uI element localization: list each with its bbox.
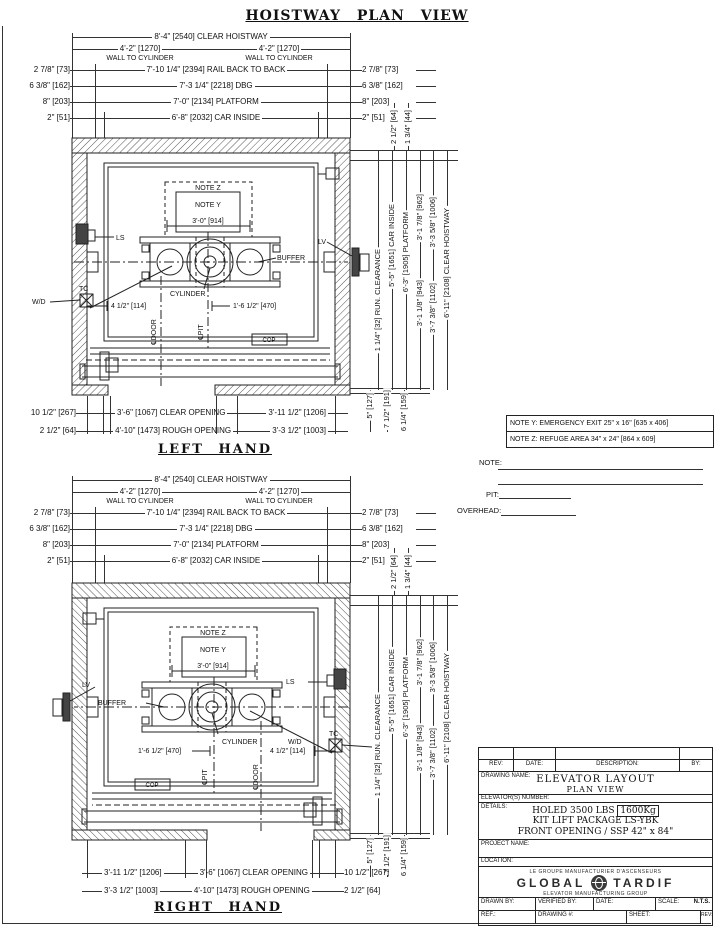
top-dim-row: 2 7/8" [73] 7'-10 1/4" [2394] RAIL BACK …	[16, 66, 436, 74]
dim-label: 3'-3 1/2" [1003]	[270, 427, 328, 435]
dim-line	[255, 529, 362, 530]
dim-line	[328, 413, 348, 414]
dim-label: 7'-0" [2134] PLATFORM	[171, 541, 261, 549]
logo-row: LE GROUPE MANUFACTURIER D'ASCENSEURS GLO…	[479, 867, 712, 898]
title-block: REV: DATE: DESCRIPTION: BY: DRAWING NAME…	[478, 747, 713, 926]
overhead-field-line	[501, 515, 576, 516]
wd-label: W/D	[32, 299, 46, 306]
dim-sublabel: WALL TO CYLINDER	[224, 55, 334, 62]
dim-label: 3'-7 3/8" [1102]	[429, 281, 437, 335]
top-dim-row: 4'-2" [1270]	[208, 45, 350, 53]
dim-line	[255, 86, 362, 87]
description-cell-empty	[556, 748, 680, 760]
cylinder-label: CYLINDER	[170, 291, 205, 298]
vdim-label: 5'-5" [1651] CAR INSIDE	[386, 180, 398, 310]
dim-label: 3'-1 7/8" [962]	[416, 192, 424, 242]
top-dim-row: 6 3/8" [162] 7'-3 1/4" [2218] DBG 6 3/8"…	[16, 82, 436, 90]
dim-line	[301, 492, 350, 493]
dim-label: 3'-6" [1067] CLEAR OPENING	[115, 409, 227, 417]
dim-label: 4'-2" [1270]	[118, 488, 162, 496]
dim-label: 1 3/4" [44]	[404, 108, 412, 146]
top-dim-row: 2" [51] 6'-8" [2032] CAR INSIDE 2" [51]	[16, 114, 436, 122]
sheet-border-left	[2, 26, 3, 924]
note-z-text: NOTE Z: REFUGE AREA 34" x 24" [864 x 609…	[507, 432, 713, 447]
dim-label: 3'-3 5/8" [1006]	[429, 640, 437, 694]
cop-label: COP	[145, 783, 158, 789]
dim-line	[82, 873, 102, 874]
drawing-name-line2: PLAN VIEW	[479, 785, 712, 794]
ext-line	[350, 33, 351, 138]
vdim-label: 7 1/2" [191]	[381, 344, 393, 474]
door-centerline-label: ℄DOOR	[253, 764, 260, 791]
dim-label: 1 3/4" [44]	[404, 553, 412, 591]
dim-line	[227, 413, 266, 414]
cylinder-label: CYLINDER	[222, 739, 257, 746]
rev-header: REV:	[479, 760, 514, 772]
note-field-line	[498, 484, 703, 485]
overhead-field-label: OVERHEAD:	[457, 507, 501, 515]
buffer-label: BUFFER	[98, 700, 126, 707]
dim-line	[416, 513, 436, 514]
company-logo: GLOBAL TARDIF	[479, 875, 712, 891]
vdim-label: 3'-1 1/8" [943]	[414, 683, 426, 813]
elevator-number-row: ELEVATOR(S) NUMBER:	[479, 795, 712, 803]
dim-label: 3'-1 1/8" [943]	[416, 723, 424, 773]
vdim-label: 3'-7 3/8" [1102]	[427, 243, 439, 373]
dim-label: 8'-4" [2540] CLEAR HOISTWAY	[152, 476, 269, 484]
dim-label: 6 1/4" [159]	[400, 391, 408, 433]
dim-label: 3'-1 1/8" [943]	[416, 278, 424, 328]
dim-label: 7'-0" [2134] PLATFORM	[171, 98, 261, 106]
bottom-dim-row: 3'-11 1/2" [1206] 3'-6" [1067] CLEAR OPE…	[82, 869, 402, 877]
dim-label: 3'-1 7/8" [962]	[416, 637, 424, 687]
dim-label: 2 1/2" [64]	[390, 108, 398, 146]
dim-label: 10 1/2" [267]	[18, 409, 76, 417]
left-hand-title: LEFT HAND	[60, 442, 370, 457]
dim-line	[70, 513, 145, 514]
dim-label: 8" [203]	[16, 541, 70, 549]
dim-label: 3'-3 1/2" [1003]	[102, 887, 160, 895]
right-hand-title: RIGHT HAND	[63, 900, 373, 915]
dim-label: 5" [127]	[366, 836, 374, 866]
dim-label: 5'-5" [1651] CAR INSIDE	[388, 647, 396, 734]
dim-line	[72, 49, 118, 50]
dim-label: 6'-11" [2108] CLEAR HOISTWAY	[443, 206, 451, 320]
dim-label: 6 3/8" [162]	[16, 82, 70, 90]
top-dim-row: 2 7/8" [73] 7'-10 1/4" [2394] RAIL BACK …	[16, 509, 436, 517]
by-cell-empty	[680, 748, 712, 760]
vdim-label: 6'-11" [2108] CLEAR HOISTWAY	[441, 643, 453, 773]
dim-line	[208, 492, 257, 493]
dim-label: 1 1/4" [32] RUN. CLEARANCE	[374, 692, 382, 798]
vdim-label: 5" [127]	[364, 786, 376, 916]
location-row: LOCATION:	[479, 858, 712, 867]
top-dim-row: 8'-4" [2540] CLEAR HOISTWAY	[72, 33, 350, 41]
dim-label: 2 7/8" [73]	[16, 66, 70, 74]
dim-label: 6'-8" [2032] CAR INSIDE	[170, 114, 262, 122]
ext-line	[95, 64, 96, 138]
date-header: DATE:	[514, 760, 556, 772]
dim-label: 7'-10 1/4" [2394] RAIL BACK TO BACK	[145, 509, 288, 517]
dim-label: 10 1/2" [267]	[344, 869, 402, 877]
dim-label: 3'-0" [914]	[192, 218, 224, 225]
dim-line	[82, 891, 102, 892]
ext-line	[350, 476, 351, 583]
sheet-cell: SHEET:	[627, 911, 701, 924]
tc-label: TC	[79, 286, 88, 293]
ext-line	[318, 112, 319, 138]
dim-label: 4'-2" [1270]	[257, 488, 301, 496]
dim-line	[70, 86, 177, 87]
by-header: BY:	[680, 760, 712, 772]
date-cell-empty	[514, 748, 556, 760]
door-centerline-label: ℄DOOR	[151, 319, 158, 346]
dim-label: 3'-6" [1067] CLEAR OPENING	[198, 869, 310, 877]
ext-line	[72, 33, 73, 138]
dim-label: 5'-5" [1651] CAR INSIDE	[388, 202, 396, 289]
vdim-label: 6'-3" [1905] PLATFORM	[400, 632, 412, 762]
dim-label: 1'-6 1/2" [470]	[233, 303, 276, 310]
dim-label: 2 1/2" [64]	[18, 427, 76, 435]
dim-line	[416, 70, 436, 71]
dim-line	[208, 49, 257, 50]
drawing-number-cell: DRAWING #:	[536, 911, 627, 924]
dim-label: 2" [51]	[16, 557, 70, 565]
dim-line	[76, 431, 113, 432]
dim-label: 7'-10 1/4" [2394] RAIL BACK TO BACK	[145, 66, 288, 74]
dim-label: 3'-7 3/8" [1102]	[429, 726, 437, 780]
top-dim-row: 4'-2" [1270]	[72, 45, 208, 53]
drawing-name-line1: ELEVATOR LAYOUT	[479, 774, 712, 785]
dim-label: 3'-11 1/2" [1206]	[266, 409, 328, 417]
dim-line	[76, 413, 115, 414]
dim-label: 2 1/2" [64]	[344, 887, 402, 895]
vdim-label: 1 3/4" [44]	[402, 507, 414, 637]
dim-label: 5" [127]	[366, 391, 374, 421]
vdim-label: 7 1/2" [191]	[381, 789, 393, 919]
dim-line	[416, 561, 436, 562]
dim-line	[233, 431, 270, 432]
ext-line	[327, 507, 328, 583]
dim-line	[310, 873, 344, 874]
dim-label: 8'-4" [2540] CLEAR HOISTWAY	[152, 33, 269, 41]
details-line2: KIT LIFT PACKAGE LS-YBK	[479, 816, 712, 826]
verified-by-cell: VERIFIED BY:	[536, 898, 594, 911]
details-row: DETAILS: HOLED 3500 LBS 1600Kg KIT LIFT …	[479, 803, 712, 840]
top-dim-row: 8" [203] 7'-0" [2134] PLATFORM 8" [203]	[16, 98, 436, 106]
globe-icon-equator	[592, 882, 606, 883]
scale-cell: SCALE: N.T.S.	[656, 898, 712, 911]
rev-cell-empty	[479, 748, 514, 760]
plan-svg-left: NOTE Z NOTE Y 3'-0" [914] LS LV TC W/D B…	[30, 136, 378, 398]
top-dim-row: 8'-4" [2540] CLEAR HOISTWAY	[72, 476, 350, 484]
pit-field-line	[499, 498, 571, 499]
scale-value: N.T.S.	[694, 899, 710, 905]
pit-centerline-label: ℄PIT	[198, 324, 205, 341]
scale-label: SCALE:	[658, 899, 679, 905]
dim-line	[164, 873, 198, 874]
plan-svg-right: NOTE Z NOTE Y 3'-0" [914] LS LV TC W/D B…	[30, 581, 378, 843]
dim-line	[328, 431, 348, 432]
dim-line	[416, 545, 436, 546]
dim-line	[160, 891, 192, 892]
cop-label: COP	[262, 338, 275, 344]
details-line1-text: HOLED 3500 LBS	[532, 806, 614, 816]
dim-line	[270, 480, 350, 481]
dim-label: 3'-0" [914]	[197, 663, 229, 670]
pit-field-label: PIT:	[486, 491, 499, 499]
bottom-dim-row: 10 1/2" [267] 3'-6" [1067] CLEAR OPENING…	[18, 409, 348, 417]
dim-label: 4'-10" [1473] ROUGH OPENING	[113, 427, 233, 435]
vdim-label: 3'-1 1/8" [943]	[414, 238, 426, 368]
vdim-label: 6 1/4" [159]	[398, 347, 410, 477]
dim-label: 4'-10" [1473] ROUGH OPENING	[192, 887, 312, 895]
dim-line	[70, 70, 145, 71]
pit-centerline-label: ℄PIT	[202, 769, 209, 786]
dim-label: 3'-11 1/2" [1206]	[102, 869, 164, 877]
ext-line	[104, 555, 105, 583]
note-z-label: NOTE Z	[195, 185, 221, 192]
vdim-label: 6 1/4" [159]	[398, 792, 410, 922]
note-y-label: NOTE Y	[200, 647, 226, 654]
plan-linework	[50, 138, 369, 395]
dim-label: 6 3/8" [162]	[16, 525, 70, 533]
dim-label: 6'-3" [1905] PLATFORM	[402, 655, 410, 739]
ls-label: LS	[116, 235, 125, 242]
dim-line	[70, 102, 171, 103]
dim-line	[416, 529, 436, 530]
vdim-label: 6'-11" [2108] CLEAR HOISTWAY	[441, 198, 453, 328]
drawing-sheet: HOISTWAY PLAN VIEW 8'-4" [2540] CLEAR HO…	[0, 0, 714, 926]
dim-line	[162, 492, 208, 493]
dim-line	[70, 561, 170, 562]
vdim-label: 1 3/4" [44]	[402, 62, 414, 192]
dim-sublabel: WALL TO CYLINDER	[224, 498, 334, 505]
dim-label: 3'-3 5/8" [1006]	[429, 195, 437, 249]
note-field-line	[498, 469, 703, 470]
dim-sublabel: WALL TO CYLINDER	[85, 55, 195, 62]
dim-label: 4 1/2" [114]	[111, 303, 146, 310]
dim-line	[261, 545, 362, 546]
vdim-label: 2 1/2" [64]	[388, 507, 400, 637]
dim-label: 4'-2" [1270]	[118, 45, 162, 53]
dim-line	[416, 86, 436, 87]
bottom-dim-row: 2 1/2" [64] 4'-10" [1473] ROUGH OPENING …	[18, 427, 348, 435]
dim-line	[72, 492, 118, 493]
dim-sublabel: WALL TO CYLINDER	[85, 498, 195, 505]
dim-label: 7 1/2" [191]	[383, 388, 391, 430]
top-dim-row: 4'-2" [1270]	[208, 488, 350, 496]
lv-label: LV	[82, 682, 90, 689]
description-header: DESCRIPTION:	[556, 760, 680, 772]
globe-icon	[591, 875, 607, 891]
dim-label: 6'-11" [2108] CLEAR HOISTWAY	[443, 651, 451, 765]
ext-line	[104, 112, 105, 138]
lv-label: LV	[318, 239, 326, 246]
vdim-label: 6'-3" [1905] PLATFORM	[400, 187, 412, 317]
vdim-label: 2 1/2" [64]	[388, 62, 400, 192]
dim-line	[70, 118, 170, 119]
ref-cell: REF.:	[479, 911, 536, 924]
date-cell: DATE:	[594, 898, 656, 911]
dim-label: 6'-8" [2032] CAR INSIDE	[170, 557, 262, 565]
logo-word-tardif: TARDIF	[613, 876, 674, 890]
elevator-number-label: ELEVATOR(S) NUMBER:	[481, 795, 549, 801]
ls-label: LS	[286, 679, 295, 686]
dim-line	[416, 118, 436, 119]
ext-line	[318, 555, 319, 583]
top-dim-row: 4'-2" [1270]	[72, 488, 208, 496]
dim-label: 6'-3" [1905] PLATFORM	[402, 210, 410, 294]
bottom-dim-row: 3'-3 1/2" [1003] 4'-10" [1473] ROUGH OPE…	[82, 887, 402, 895]
top-dim-row: 6 3/8" [162] 7'-3 1/4" [2218] DBG 6 3/8"…	[16, 525, 436, 533]
dim-line	[312, 891, 344, 892]
dim-line	[162, 49, 208, 50]
plan-linework-mirrored	[53, 583, 372, 840]
logo-tagline-bottom: ELEVATOR MANUFACTURING GROUP	[479, 891, 712, 897]
vdim-label: 3'-7 3/8" [1102]	[427, 688, 439, 818]
logo-word-global: GLOBAL	[517, 876, 586, 890]
dim-line	[72, 37, 152, 38]
drawn-by-cell: DRAWN BY:	[479, 898, 536, 911]
note-y-text: NOTE Y: EMERGENCY EXIT 25" x 16" [635 x …	[507, 416, 713, 432]
location-label: LOCATION:	[481, 858, 513, 864]
dim-label: 8" [203]	[16, 98, 70, 106]
dim-label: 7'-3 1/4" [2218] DBG	[177, 525, 254, 533]
ext-line	[95, 507, 96, 583]
dim-line	[262, 561, 362, 562]
dim-label: 1'-6 1/2" [470]	[138, 748, 181, 755]
globe-icon-ellipse	[595, 877, 603, 889]
dim-line	[72, 480, 152, 481]
project-name-label: PROJECT NAME:	[481, 841, 530, 847]
dim-line	[270, 37, 350, 38]
vdim-label: 5'-5" [1651] CAR INSIDE	[386, 625, 398, 755]
dim-line	[261, 102, 362, 103]
ext-line	[72, 476, 73, 583]
ext-line	[327, 64, 328, 138]
note-y-label: NOTE Y	[195, 202, 221, 209]
dim-label: 1 1/4" [32] RUN. CLEARANCE	[374, 247, 382, 353]
buffer-label: BUFFER	[277, 255, 305, 262]
dim-line	[70, 529, 177, 530]
note-field-label: NOTE:	[479, 459, 502, 467]
tc-label: TC	[329, 731, 338, 738]
dim-line	[262, 118, 362, 119]
dim-line	[70, 545, 171, 546]
top-dim-row: 8" [203] 7'-0" [2134] PLATFORM 8" [203]	[16, 541, 436, 549]
dim-label: 4 1/2" [114]	[270, 748, 305, 755]
dim-line	[301, 49, 350, 50]
dim-label: 7'-3 1/4" [2218] DBG	[177, 82, 254, 90]
top-dim-row: 2" [51] 6'-8" [2032] CAR INSIDE 2" [51]	[16, 557, 436, 565]
project-name-row: PROJECT NAME:	[479, 840, 712, 858]
page-title: HOISTWAY PLAN VIEW	[0, 8, 714, 24]
drawing-name-row: DRAWING NAME: ELEVATOR LAYOUT PLAN VIEW	[479, 772, 712, 795]
dim-label: 2 1/2" [64]	[390, 553, 398, 591]
dim-label: 4'-2" [1270]	[257, 45, 301, 53]
dim-line	[416, 102, 436, 103]
note-z-label: NOTE Z	[200, 630, 226, 637]
dim-label: 2" [51]	[16, 114, 70, 122]
dim-label: 2 7/8" [73]	[16, 509, 70, 517]
rev-cell: REV:	[701, 911, 712, 924]
wd-label: W/D	[288, 739, 302, 746]
details-line3: FRONT OPENING / SSP 42" x 84"	[479, 827, 712, 837]
notes-box: NOTE Y: EMERGENCY EXIT 25" x 16" [635 x …	[506, 415, 714, 448]
